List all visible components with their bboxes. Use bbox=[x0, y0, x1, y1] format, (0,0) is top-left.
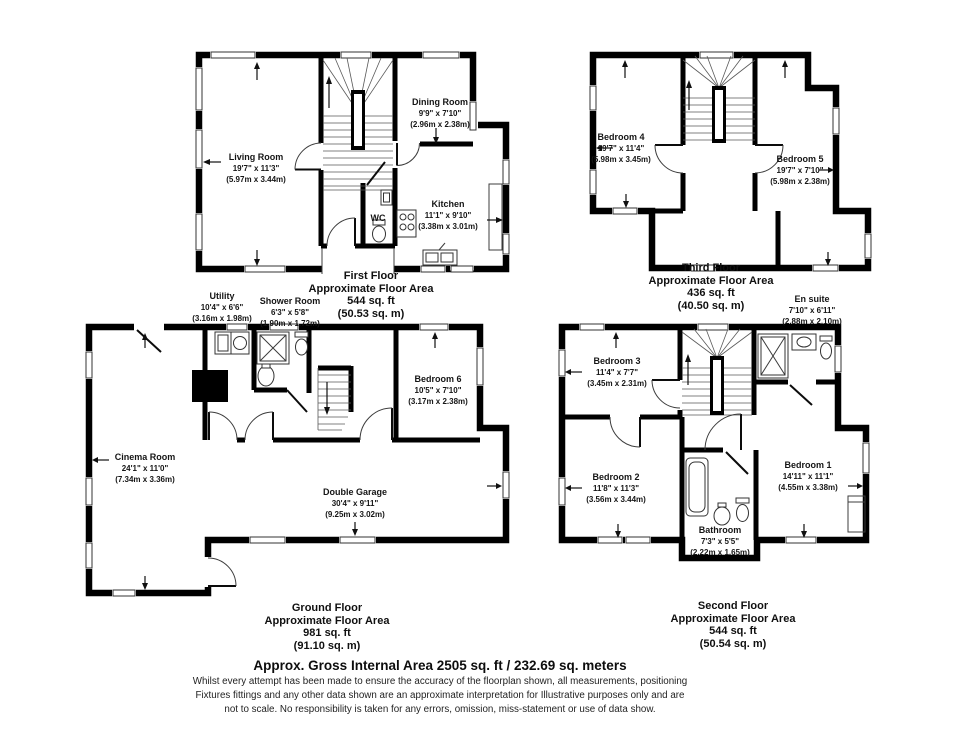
room-label-bedroom-4: Bedroom 4 19'7" x 11'4" (5.98m x 3.45m) bbox=[591, 132, 651, 165]
kitchen-sink-icon bbox=[423, 243, 457, 265]
room-label-bedroom-3: Bedroom 3 11'4" x 7'7" (3.45m x 2.31m) bbox=[587, 356, 647, 389]
ground-floor-plan bbox=[85, 290, 517, 602]
room-label-bedroom-2: Bedroom 2 11'8" x 11'3" (3.56m x 3.44m) bbox=[586, 472, 646, 505]
toilet-icon bbox=[295, 332, 308, 355]
disclaimer-line: not to scale. No responsibility is taken… bbox=[0, 703, 880, 717]
sink-icon bbox=[792, 334, 816, 350]
footer: Approx. Gross Internal Area 2505 sq. ft … bbox=[0, 657, 880, 717]
disclaimer-line: Fixtures fittings and any other data sho… bbox=[0, 689, 880, 703]
stairs-icon bbox=[683, 56, 755, 143]
room-label-en-suite: En suite 7'10" x 6'11" (2.88m x 2.10m) bbox=[782, 294, 842, 327]
sink-icon bbox=[231, 332, 249, 354]
sink-icon bbox=[714, 503, 730, 525]
first-floor-title: First Floor Approximate Floor Area 544 s… bbox=[309, 270, 434, 320]
ground-floor-title: Ground Floor Approximate Floor Area 981 … bbox=[265, 602, 390, 652]
gross-internal-area-headline: Approx. Gross Internal Area 2505 sq. ft … bbox=[0, 657, 880, 675]
room-label-bedroom-6: Bedroom 6 10'5" x 7'10" (3.17m x 2.38m) bbox=[408, 374, 468, 407]
en-suite-fixtures bbox=[758, 334, 832, 378]
hob-icon bbox=[397, 210, 416, 237]
chimney-block bbox=[192, 370, 228, 402]
shower-icon bbox=[758, 334, 788, 378]
door-arcs bbox=[655, 145, 783, 173]
room-label-utility: Utility 10'4" x 6'6" (3.16m x 1.98m) bbox=[192, 291, 252, 324]
wardrobe-icon bbox=[848, 496, 865, 532]
stairs-icon bbox=[682, 329, 752, 415]
room-label-living-room: Living Room 19'7" x 11'3" (5.97m x 3.44m… bbox=[226, 152, 286, 185]
washer-icon bbox=[215, 332, 231, 354]
shower-icon bbox=[257, 332, 289, 364]
room-label-cinema-room: Cinema Room 24'1" x 11'0" (7.34m x 3.36m… bbox=[115, 452, 176, 485]
room-label-bedroom-5: Bedroom 5 19'7" x 7'10" (5.98m x 2.38m) bbox=[770, 154, 830, 187]
room-label-bathroom: Bathroom 7'3" x 5'5" (2.22m x 1.65m) bbox=[690, 525, 750, 558]
toilet-icon bbox=[736, 498, 749, 522]
sink-icon bbox=[258, 364, 274, 386]
room-label-kitchen: Kitchen 11'1" x 9'10" (3.38m x 3.01m) bbox=[418, 199, 478, 232]
third-floor-title: Third Floor Approximate Floor Area 436 s… bbox=[649, 262, 774, 312]
bathtub-icon bbox=[686, 458, 708, 516]
stairs-icon bbox=[318, 366, 351, 430]
room-label-wc: WC bbox=[371, 213, 386, 224]
second-floor-title: Second Floor Approximate Floor Area 544 … bbox=[671, 600, 796, 650]
ground-floor-drawing bbox=[85, 290, 517, 602]
room-label-double-garage: Double Garage 30'4" x 9'11" (9.25m x 3.0… bbox=[323, 487, 387, 520]
utility-fixtures bbox=[215, 332, 249, 354]
room-label-dining-room: Dining Room 9'9" x 7'10" (2.96m x 2.38m) bbox=[410, 97, 470, 130]
second-floor-drawing bbox=[558, 290, 888, 565]
floorplan-sheet: Living Room 19'7" x 11'3" (5.97m x 3.44m… bbox=[0, 0, 980, 751]
second-floor-plan bbox=[558, 290, 888, 565]
room-label-bedroom-1: Bedroom 1 14'11" x 11'1" (4.55m x 3.38m) bbox=[778, 460, 838, 493]
shower-room-fixtures bbox=[257, 332, 308, 386]
toilet-icon bbox=[820, 336, 832, 359]
stairs-icon bbox=[323, 58, 393, 190]
disclaimer-line: Whilst every attempt has been made to en… bbox=[0, 675, 880, 689]
bathroom-fixtures bbox=[686, 458, 749, 525]
